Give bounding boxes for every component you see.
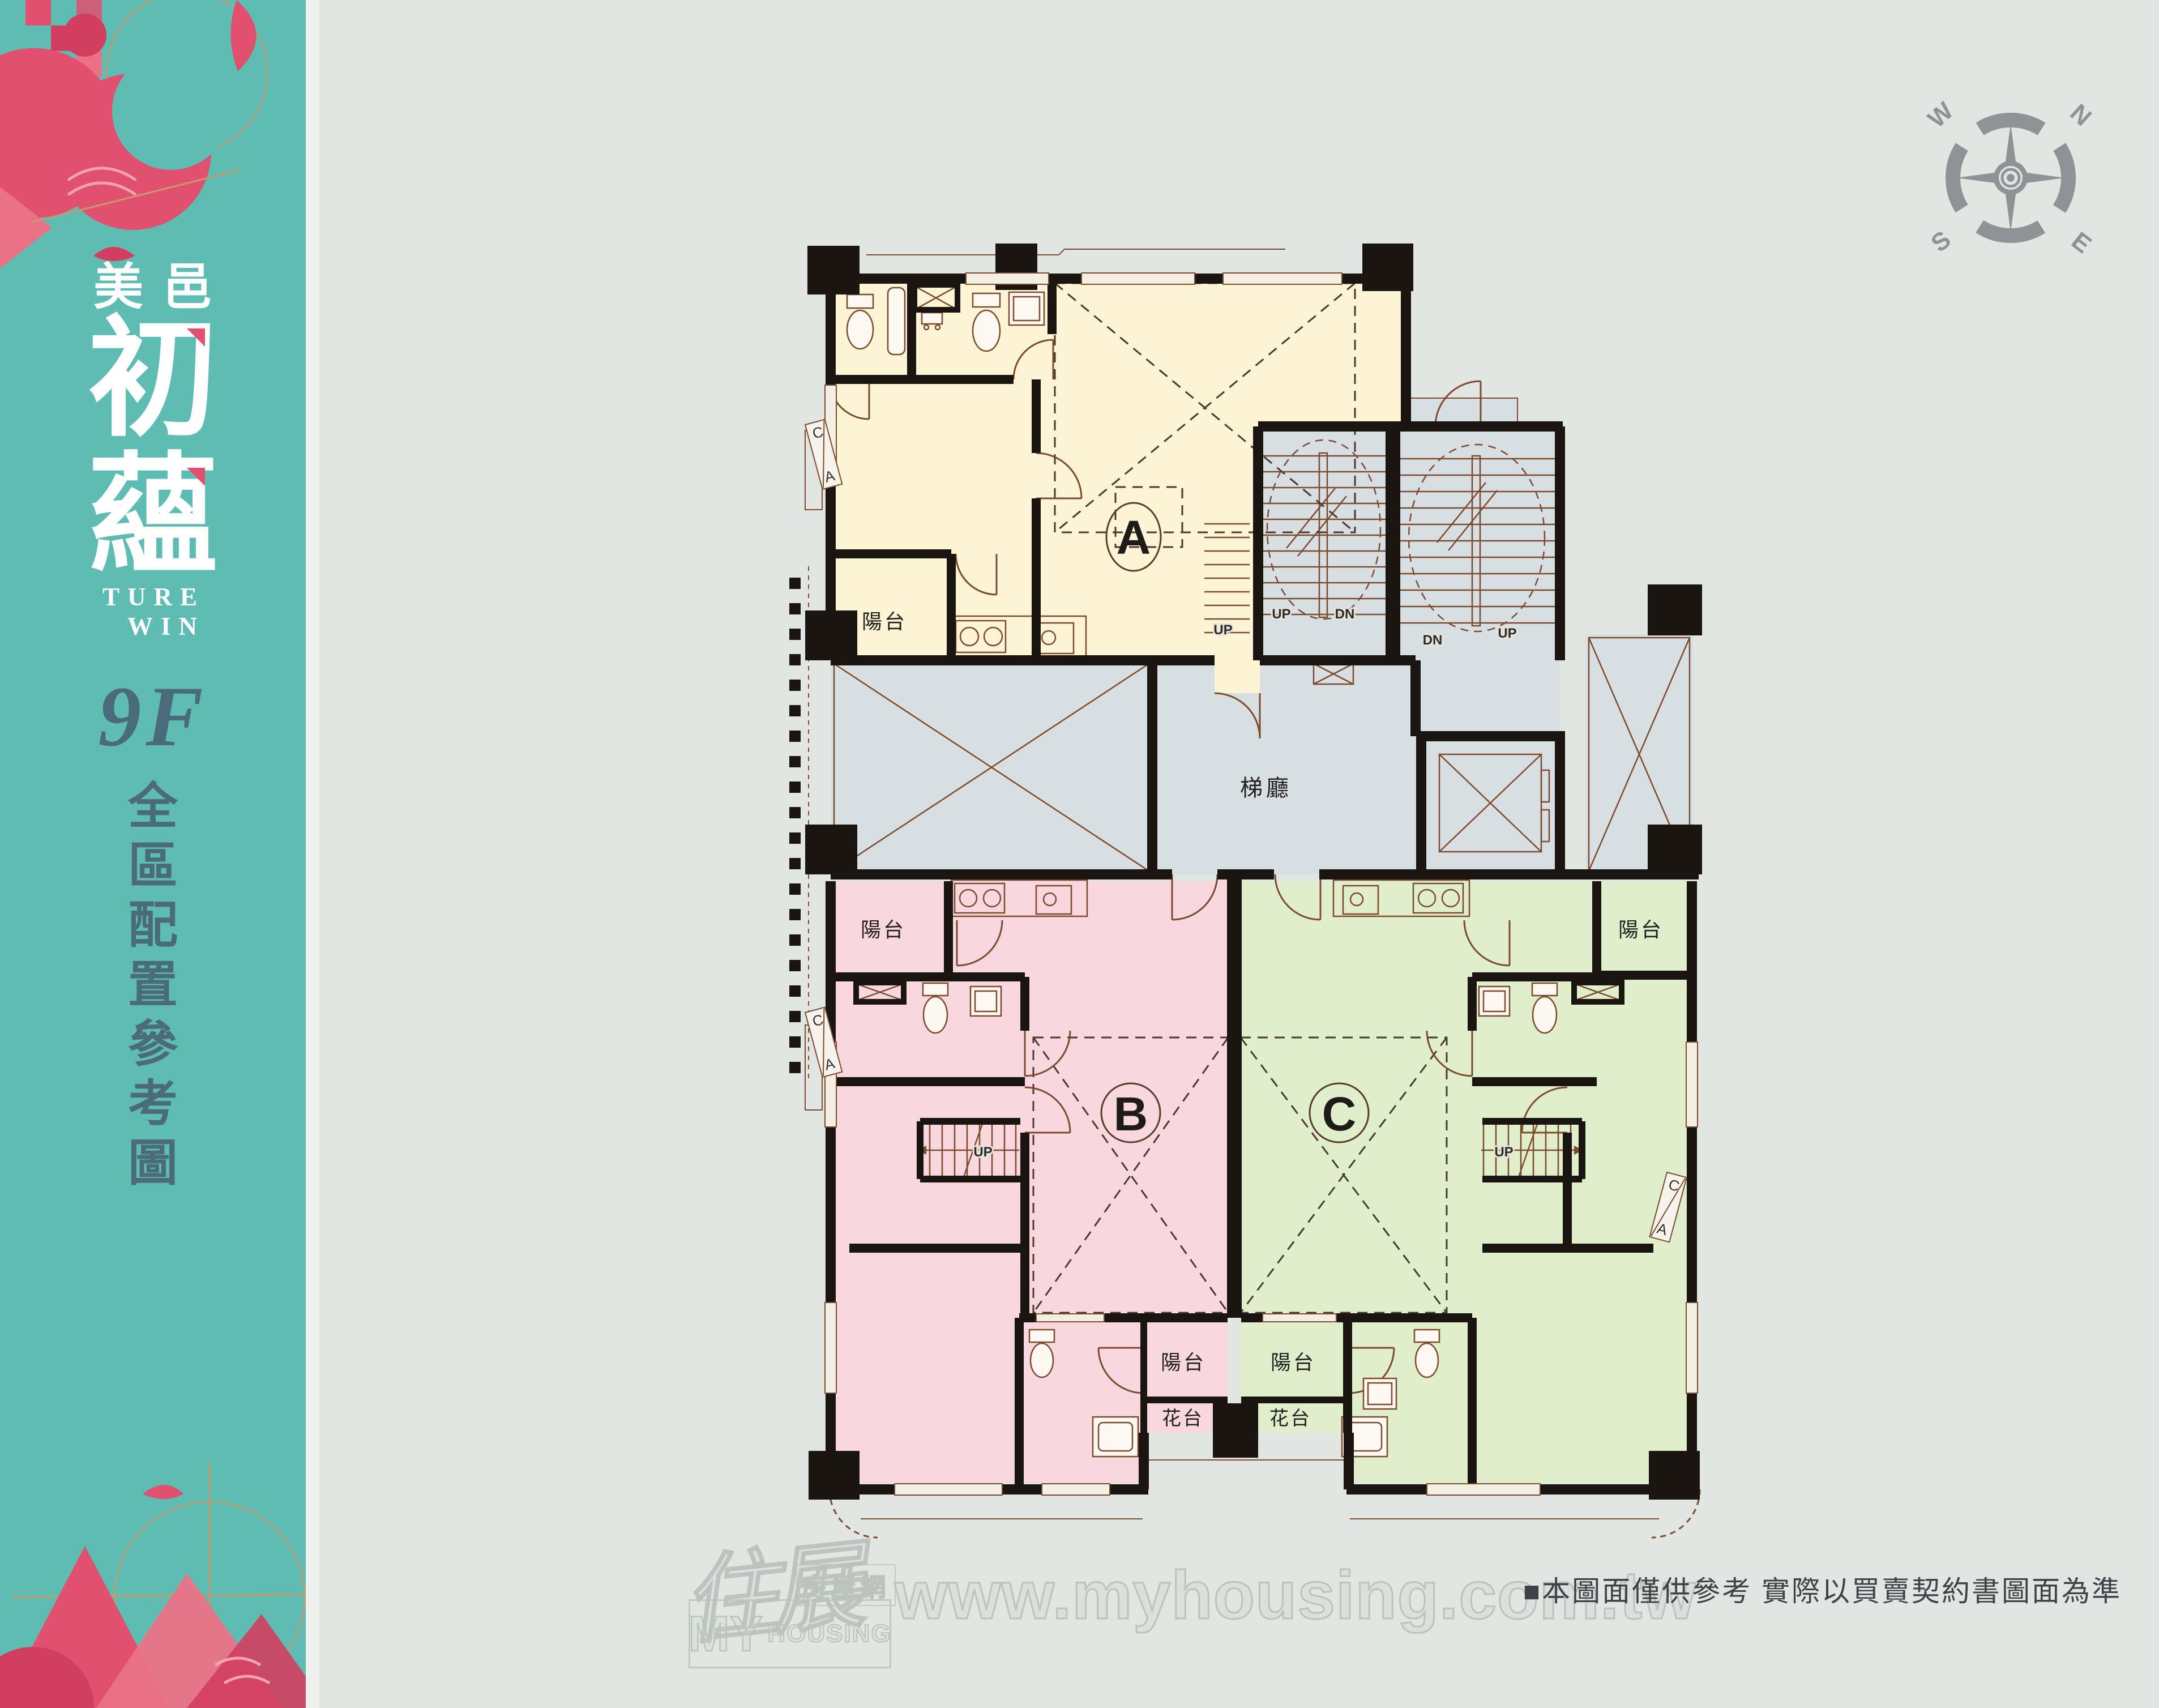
brand-accent-triangle-icon bbox=[187, 468, 205, 486]
up-label: UP bbox=[1498, 626, 1516, 641]
balcony-label: 陽台 bbox=[1271, 1351, 1316, 1374]
up-label: UP bbox=[1494, 1145, 1513, 1160]
watermark-logo-box: MY HOUSING bbox=[689, 1599, 891, 1668]
up-label: UP bbox=[973, 1145, 992, 1160]
project-name-char-1: 初 bbox=[0, 315, 306, 445]
unit-c-label: C bbox=[1322, 1087, 1357, 1141]
subtitle-char: 全 bbox=[128, 783, 178, 832]
watermark-logo-housing: HOUSING bbox=[767, 1620, 891, 1648]
compass-icon: W N S E bbox=[1917, 84, 2105, 272]
subtitle-char: 置 bbox=[128, 961, 178, 1011]
brand-accent-triangle-icon bbox=[187, 328, 205, 347]
unit-b-label: B bbox=[1114, 1087, 1148, 1141]
project-name-char-2: 蘊 bbox=[0, 452, 306, 582]
subtitle-char: 參 bbox=[128, 1020, 178, 1070]
subtitle-char: 區 bbox=[128, 842, 178, 892]
subtitle-char: 配 bbox=[128, 902, 178, 951]
floor-label: 9F bbox=[0, 667, 306, 766]
project-name-en-line1: TURE bbox=[0, 582, 205, 612]
compass-west-label: W bbox=[1922, 97, 1959, 134]
compass-east-label: E bbox=[2066, 227, 2096, 259]
balcony-label: 陽台 bbox=[1161, 1351, 1206, 1374]
elevator-area-region bbox=[1416, 660, 1560, 874]
page-subtitle: 全 區 配 置 參 考 圖 bbox=[0, 783, 306, 1189]
unit-a-label: A bbox=[1117, 511, 1151, 564]
left-ladder-strip bbox=[789, 578, 801, 1073]
sidebar-edge-strip bbox=[306, 0, 319, 1708]
compass-south-label: S bbox=[1926, 225, 1956, 258]
unit-a-vestibule bbox=[1215, 660, 1260, 693]
floor-plan-page: 美邑 初 蘊 TURE WIN 9F 全 區 配 置 參 考 圖 W N S bbox=[0, 0, 2159, 1708]
up-label: UP bbox=[1213, 622, 1232, 638]
watermark: 住展 房屋網 MY HOUSING www.myhousing.com.tw bbox=[684, 1525, 1545, 1694]
flower-bed-label: 花台 bbox=[1162, 1408, 1204, 1429]
subtitle-char: 圖 bbox=[128, 1139, 178, 1189]
balcony-label: 陽台 bbox=[1618, 918, 1664, 941]
balcony-label: 陽台 bbox=[862, 610, 907, 633]
down-label: DN bbox=[1335, 607, 1355, 622]
watermark-logo-my: MY bbox=[688, 1605, 763, 1663]
lobby-region bbox=[1152, 660, 1416, 874]
subtitle-char: 考 bbox=[128, 1080, 178, 1130]
stairwell-1-region bbox=[1258, 426, 1393, 660]
balcony-label: 陽台 bbox=[861, 918, 906, 941]
stair-hall-label: 梯廳 bbox=[1240, 776, 1292, 801]
up-label: UP bbox=[1272, 607, 1290, 622]
project-name-en-line2: WIN bbox=[0, 612, 205, 641]
flower-bed-label: 花台 bbox=[1269, 1408, 1311, 1429]
disclaimer-note: ■本圖面僅供參考 實際以買賣契約書圖面為準 bbox=[1523, 1569, 2122, 1609]
sidebar-bottom-decoration-icon bbox=[0, 1427, 306, 1708]
sidebar: 美邑 初 蘊 TURE WIN 9F 全 區 配 置 參 考 圖 bbox=[0, 0, 306, 1708]
down-label: DN bbox=[1423, 633, 1443, 648]
compass-north-label: N bbox=[2064, 99, 2096, 131]
floor-plan-drawing: C A C A C A A B C bbox=[776, 238, 1704, 1552]
